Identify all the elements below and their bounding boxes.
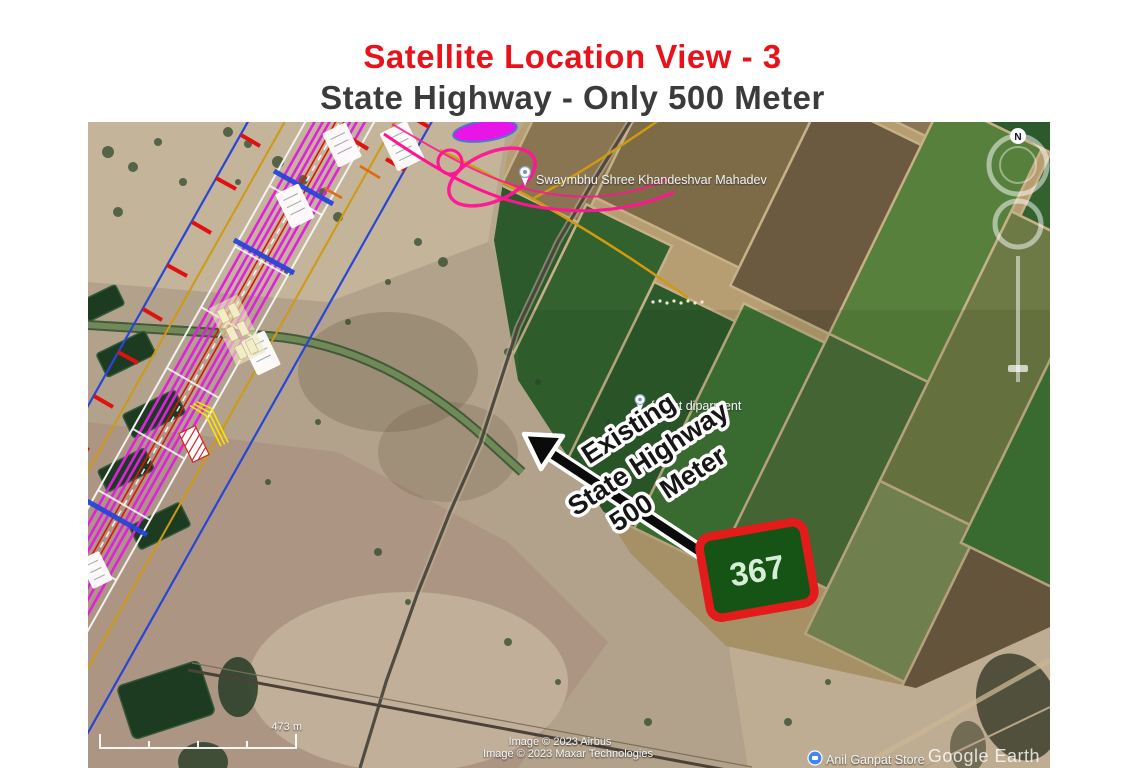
store-label: Anil Ganpat Store (826, 753, 925, 767)
page-title: Satellite Location View - 3 (0, 36, 1145, 77)
zoom-slider-knob[interactable] (1008, 365, 1028, 372)
page-subtitle: State Highway - Only 500 Meter (0, 77, 1145, 118)
attribution-line-1: Image © 2023 Airbus (509, 736, 612, 748)
temple-label: Swaymbhu Shree Khandeshvar Mahadev (536, 173, 767, 187)
plot-367-marker[interactable]: 367 (698, 520, 817, 619)
slide-title-block: Satellite Location View - 3 State Highwa… (0, 36, 1145, 118)
attribution-line-2: Image © 2023 Maxar Technologies (483, 748, 653, 760)
google-earth-watermark: Google Earth (928, 746, 1040, 766)
satellite-map-svg[interactable]: Swaymbhu Shree Khandeshvar Mahadev fores… (88, 122, 1050, 768)
compass-north-label: N (1014, 132, 1021, 143)
place-label-store[interactable]: Anil Ganpat Store (808, 751, 925, 767)
slide: Satellite Location View - 3 State Highwa… (0, 0, 1145, 768)
map-viewport[interactable]: Swaymbhu Shree Khandeshvar Mahadev fores… (88, 122, 1050, 768)
scale-label: 473 m (271, 721, 302, 733)
